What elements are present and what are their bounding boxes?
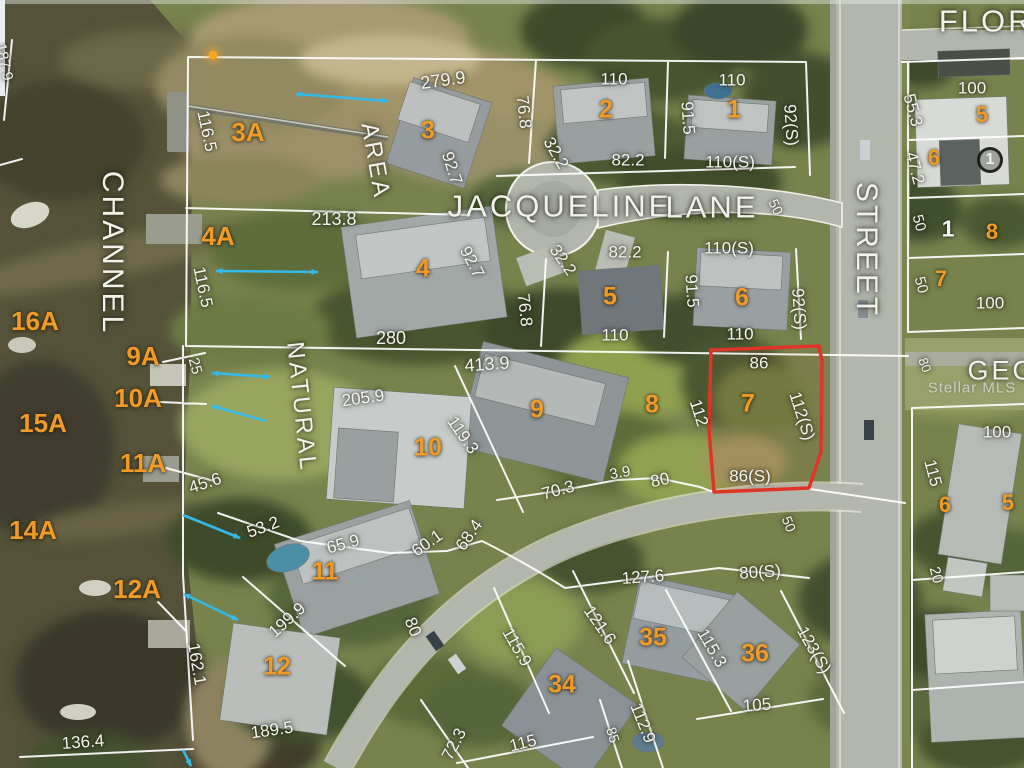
dock-4a	[146, 214, 202, 244]
photo-edge	[0, 0, 1024, 4]
dock-9a	[150, 364, 186, 386]
marker-dot	[204, 46, 222, 64]
aerial-imagery	[0, 0, 1024, 768]
boat	[8, 337, 36, 353]
aerial-plat-map: CHANNELJACQUELINELANESTREETFLORINATURALA…	[0, 0, 1024, 768]
dock-12a	[148, 620, 190, 648]
dock-arrow	[216, 271, 318, 272]
dock-11a	[143, 456, 179, 482]
photo-edge	[0, 0, 5, 96]
boat	[60, 704, 96, 720]
boat	[79, 580, 111, 596]
dock-3a	[167, 92, 189, 152]
red-highlight-parcel	[709, 346, 822, 492]
